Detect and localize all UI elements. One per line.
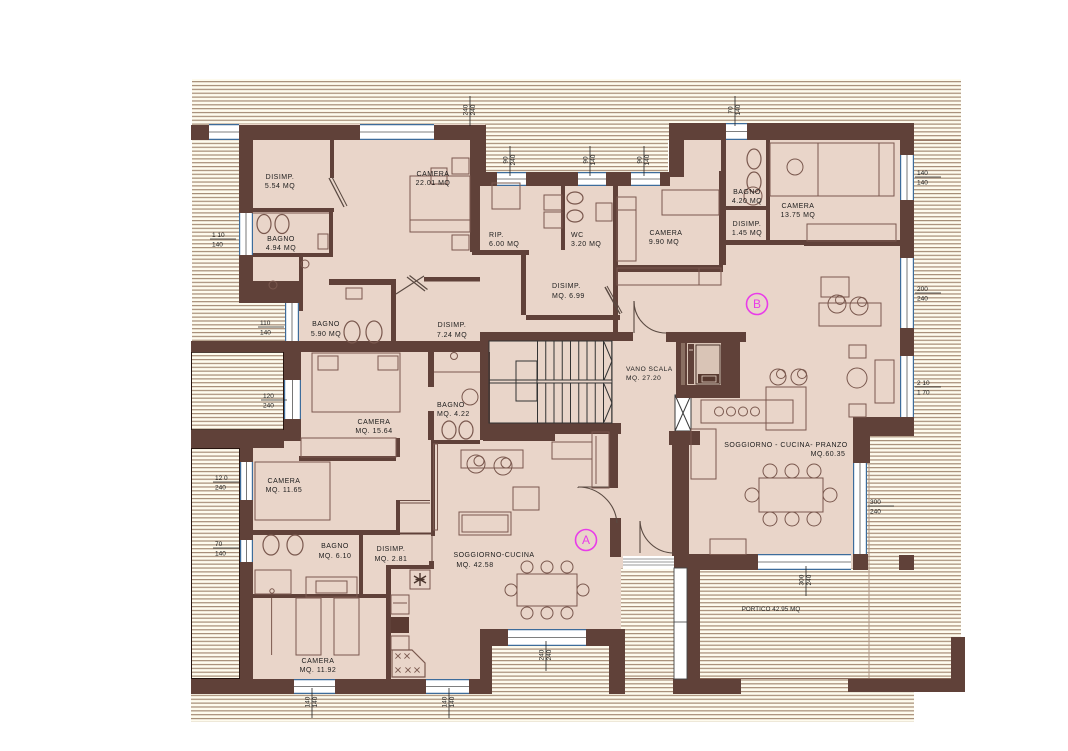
svg-text:VANO SCALA: VANO SCALA	[626, 366, 673, 373]
svg-text:2 10: 2 10	[917, 380, 930, 387]
svg-text:CAMERA: CAMERA	[358, 419, 391, 426]
svg-text:BAGNO: BAGNO	[267, 236, 295, 243]
svg-text:140: 140	[917, 180, 928, 187]
svg-text:SOGGIORNO - CUCINA- PRANZO: SOGGIORNO - CUCINA- PRANZO	[724, 442, 848, 449]
svg-text:MQ. 11.65: MQ. 11.65	[266, 487, 303, 494]
svg-text:70: 70	[215, 541, 223, 548]
svg-text:140: 140	[215, 551, 226, 558]
svg-text:MQ. 6.10: MQ. 6.10	[319, 553, 352, 560]
svg-text:240: 240	[806, 574, 813, 585]
svg-text:240: 240	[539, 649, 546, 660]
svg-text:RIP.: RIP.	[489, 232, 504, 239]
svg-text:140: 140	[305, 696, 312, 707]
svg-text:DISIMP.: DISIMP.	[552, 283, 581, 290]
svg-text:MQ. 6.99: MQ. 6.99	[552, 293, 585, 300]
svg-text:240: 240	[546, 649, 553, 660]
svg-text:1 10: 1 10	[212, 232, 225, 239]
svg-text:DISIMP.: DISIMP.	[266, 174, 295, 181]
svg-text:7.24 MQ: 7.24 MQ	[437, 332, 467, 339]
svg-text:300: 300	[799, 574, 806, 585]
svg-text:90: 90	[637, 156, 644, 164]
svg-text:6.00 MQ: 6.00 MQ	[489, 241, 519, 248]
svg-text:240: 240	[870, 509, 881, 516]
svg-text:DISIMP.: DISIMP.	[377, 546, 406, 553]
svg-text:4.20 MQ: 4.20 MQ	[732, 198, 762, 205]
svg-text:MQ. 4.22: MQ. 4.22	[437, 411, 470, 418]
svg-text:70: 70	[728, 106, 735, 114]
svg-text:9.90 MQ: 9.90 MQ	[649, 239, 679, 246]
svg-text:BAGNO: BAGNO	[321, 543, 349, 550]
svg-text:240: 240	[215, 485, 226, 492]
svg-text:BAGNO: BAGNO	[437, 402, 465, 409]
svg-text:A: A	[582, 533, 590, 547]
svg-text:240: 240	[263, 403, 274, 410]
svg-text:MQ. 27.20: MQ. 27.20	[626, 375, 661, 382]
svg-text:140: 140	[644, 154, 651, 165]
svg-text:1.45 MQ: 1.45 MQ	[732, 230, 762, 237]
svg-text:110: 110	[260, 320, 271, 327]
svg-text:1 70: 1 70	[917, 390, 930, 397]
svg-text:DISIMP.: DISIMP.	[733, 221, 762, 228]
svg-text:240: 240	[470, 104, 477, 115]
svg-text:140: 140	[312, 696, 319, 707]
svg-text:22.01 MQ: 22.01 MQ	[416, 180, 451, 187]
svg-text:5.90 MQ: 5.90 MQ	[311, 331, 341, 338]
svg-text:140: 140	[590, 154, 597, 165]
svg-text:5.54 MQ: 5.54 MQ	[265, 183, 295, 190]
svg-text:140: 140	[449, 696, 456, 707]
svg-text:MQ. 15.64: MQ. 15.64	[355, 428, 392, 435]
svg-text:CAMERA: CAMERA	[302, 658, 335, 665]
svg-text:CAMERA: CAMERA	[268, 478, 301, 485]
svg-text:CAMERA: CAMERA	[650, 230, 683, 237]
svg-text:300: 300	[870, 499, 881, 506]
svg-text:PORTICO 42.95 MQ: PORTICO 42.95 MQ	[742, 606, 801, 613]
svg-text:200: 200	[917, 286, 928, 293]
svg-text:CAMERA: CAMERA	[417, 171, 450, 178]
svg-text:140: 140	[260, 330, 271, 337]
svg-text:140: 140	[212, 242, 223, 249]
svg-text:13.75 MQ: 13.75 MQ	[781, 212, 816, 219]
svg-text:SOGGIORNO-CUCINA: SOGGIORNO-CUCINA	[453, 552, 534, 559]
svg-text:240: 240	[510, 154, 517, 165]
svg-text:140: 140	[735, 104, 742, 115]
svg-text:140: 140	[442, 696, 449, 707]
svg-text:90: 90	[503, 156, 510, 164]
svg-text:240: 240	[463, 104, 470, 115]
svg-text:90: 90	[583, 156, 590, 164]
svg-text:B: B	[753, 297, 761, 311]
svg-text:DISIMP.: DISIMP.	[438, 322, 467, 329]
svg-text:WC: WC	[571, 232, 584, 239]
svg-text:CAMERA: CAMERA	[782, 203, 815, 210]
svg-text:140: 140	[917, 170, 928, 177]
svg-text:BAGNO: BAGNO	[733, 189, 761, 196]
svg-text:240: 240	[917, 296, 928, 303]
svg-text:BAGNO: BAGNO	[312, 321, 340, 328]
svg-text:MQ. 2.81: MQ. 2.81	[375, 556, 408, 563]
svg-text:3.20 MQ: 3.20 MQ	[571, 241, 601, 248]
svg-text:120: 120	[263, 393, 274, 400]
svg-text:MQ. 11.92: MQ. 11.92	[300, 667, 337, 674]
svg-text:MQ.60.35: MQ.60.35	[811, 451, 846, 458]
svg-text:4.94 MQ: 4.94 MQ	[266, 245, 296, 252]
svg-text:12 0: 12 0	[215, 475, 228, 482]
svg-text:MQ. 42.58: MQ. 42.58	[456, 562, 493, 569]
